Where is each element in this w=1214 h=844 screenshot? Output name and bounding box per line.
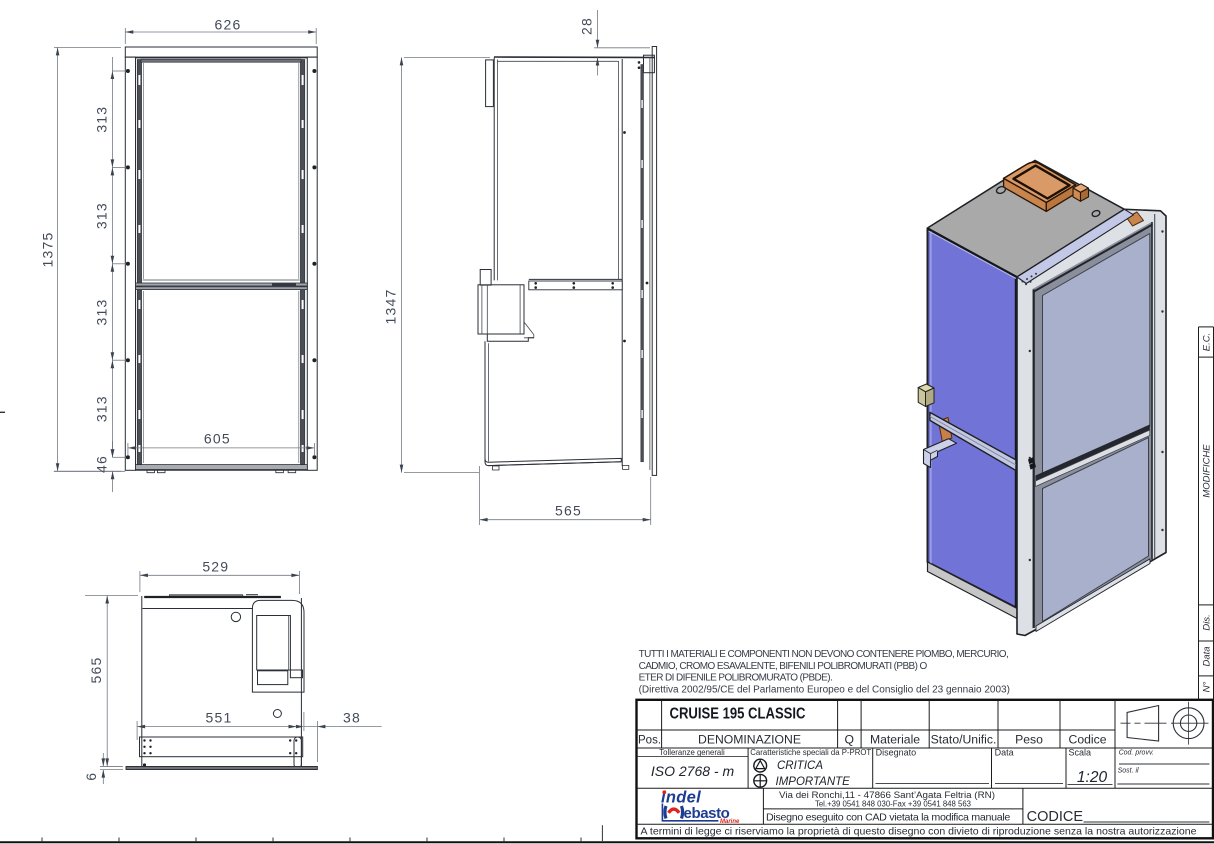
svg-text:1:20: 1:20 [1077,769,1108,786]
svg-text:indel: indel [661,789,701,807]
svg-text:Peso: Peso [1015,733,1043,747]
svg-text:CADMIO, CROMO ESAVALENTE, BIFE: CADMIO, CROMO ESAVALENTE, BIFENILI POLIB… [639,661,928,672]
svg-text:1347: 1347 [382,289,398,325]
svg-text:Q: Q [845,733,854,747]
svg-text:ISO 2768 - m: ISO 2768 - m [651,763,735,779]
svg-text:CODICE: CODICE [1027,809,1084,825]
svg-text:551: 551 [206,709,233,725]
svg-text:313: 313 [93,395,109,422]
svg-text:Tolleranze generali: Tolleranze generali [659,748,725,757]
svg-text:N°: N° [1202,681,1213,692]
svg-text:DENOMINAZIONE: DENOMINAZIONE [698,733,801,747]
svg-text:313: 313 [93,106,109,133]
svg-text:605: 605 [204,431,231,447]
svg-text:38: 38 [343,709,361,725]
svg-text:Disegno eseguito con CAD vieta: Disegno eseguito con CAD vietata la modi… [766,812,1011,823]
svg-text:28: 28 [578,17,594,35]
svg-text:626: 626 [215,17,242,33]
svg-text:TUTTI I MATERIALI E COMPONENTI: TUTTI I MATERIALI E COMPONENTI NON DEVON… [639,649,1009,660]
svg-text:Cod. provv.: Cod. provv. [1119,750,1154,757]
svg-text:Data: Data [1202,646,1213,666]
svg-text:565: 565 [88,657,104,684]
svg-text:Materiale: Materiale [870,733,920,747]
svg-text:CRUISE 195 CLASSIC: CRUISE 195 CLASSIC [670,706,806,723]
svg-text:Sost. il: Sost. il [1118,768,1139,775]
svg-text:A termini di legge ci riservia: A termini di legge ci riserviamo la prop… [641,826,1197,838]
svg-text:Pos.: Pos. [638,735,661,747]
svg-text:1375: 1375 [40,232,56,268]
svg-text:Dis.: Dis. [1202,614,1213,630]
svg-text:Caratteristiche speciali da P-: Caratteristiche speciali da P-PROT [750,748,871,757]
svg-text:6: 6 [83,772,99,781]
svg-text:Scala: Scala [1069,748,1092,758]
svg-text:46: 46 [94,455,110,473]
svg-text:Data: Data [995,748,1014,758]
svg-text:(Direttiva 2002/95/CE del Parl: (Direttiva 2002/95/CE del Parlamento Eur… [639,684,1010,695]
svg-text:313: 313 [93,299,109,326]
svg-text:Tel.+39 0541 848 030-Fax +39 0: Tel.+39 0541 848 030-Fax +39 0541 848 56… [815,800,971,809]
svg-text:313: 313 [93,202,109,229]
svg-text:ETER DI DIFENILE POLIBROMURATO: ETER DI DIFENILE POLIBROMURATO (PBDE). [639,673,833,684]
svg-text:Disegnato: Disegnato [876,748,917,758]
svg-text:529: 529 [202,558,229,574]
svg-text:Marine: Marine [720,819,740,825]
svg-text:Codice: Codice [1069,733,1107,747]
svg-text:E.C.: E.C. [1202,333,1213,351]
svg-text:565: 565 [555,503,582,519]
svg-text:MODIFICHE: MODIFICHE [1202,444,1213,498]
svg-text:IMPORTANTE: IMPORTANTE [776,776,851,788]
svg-text:Stato/Unific.: Stato/Unific. [931,733,997,747]
svg-text:CRITICA: CRITICA [777,760,823,772]
